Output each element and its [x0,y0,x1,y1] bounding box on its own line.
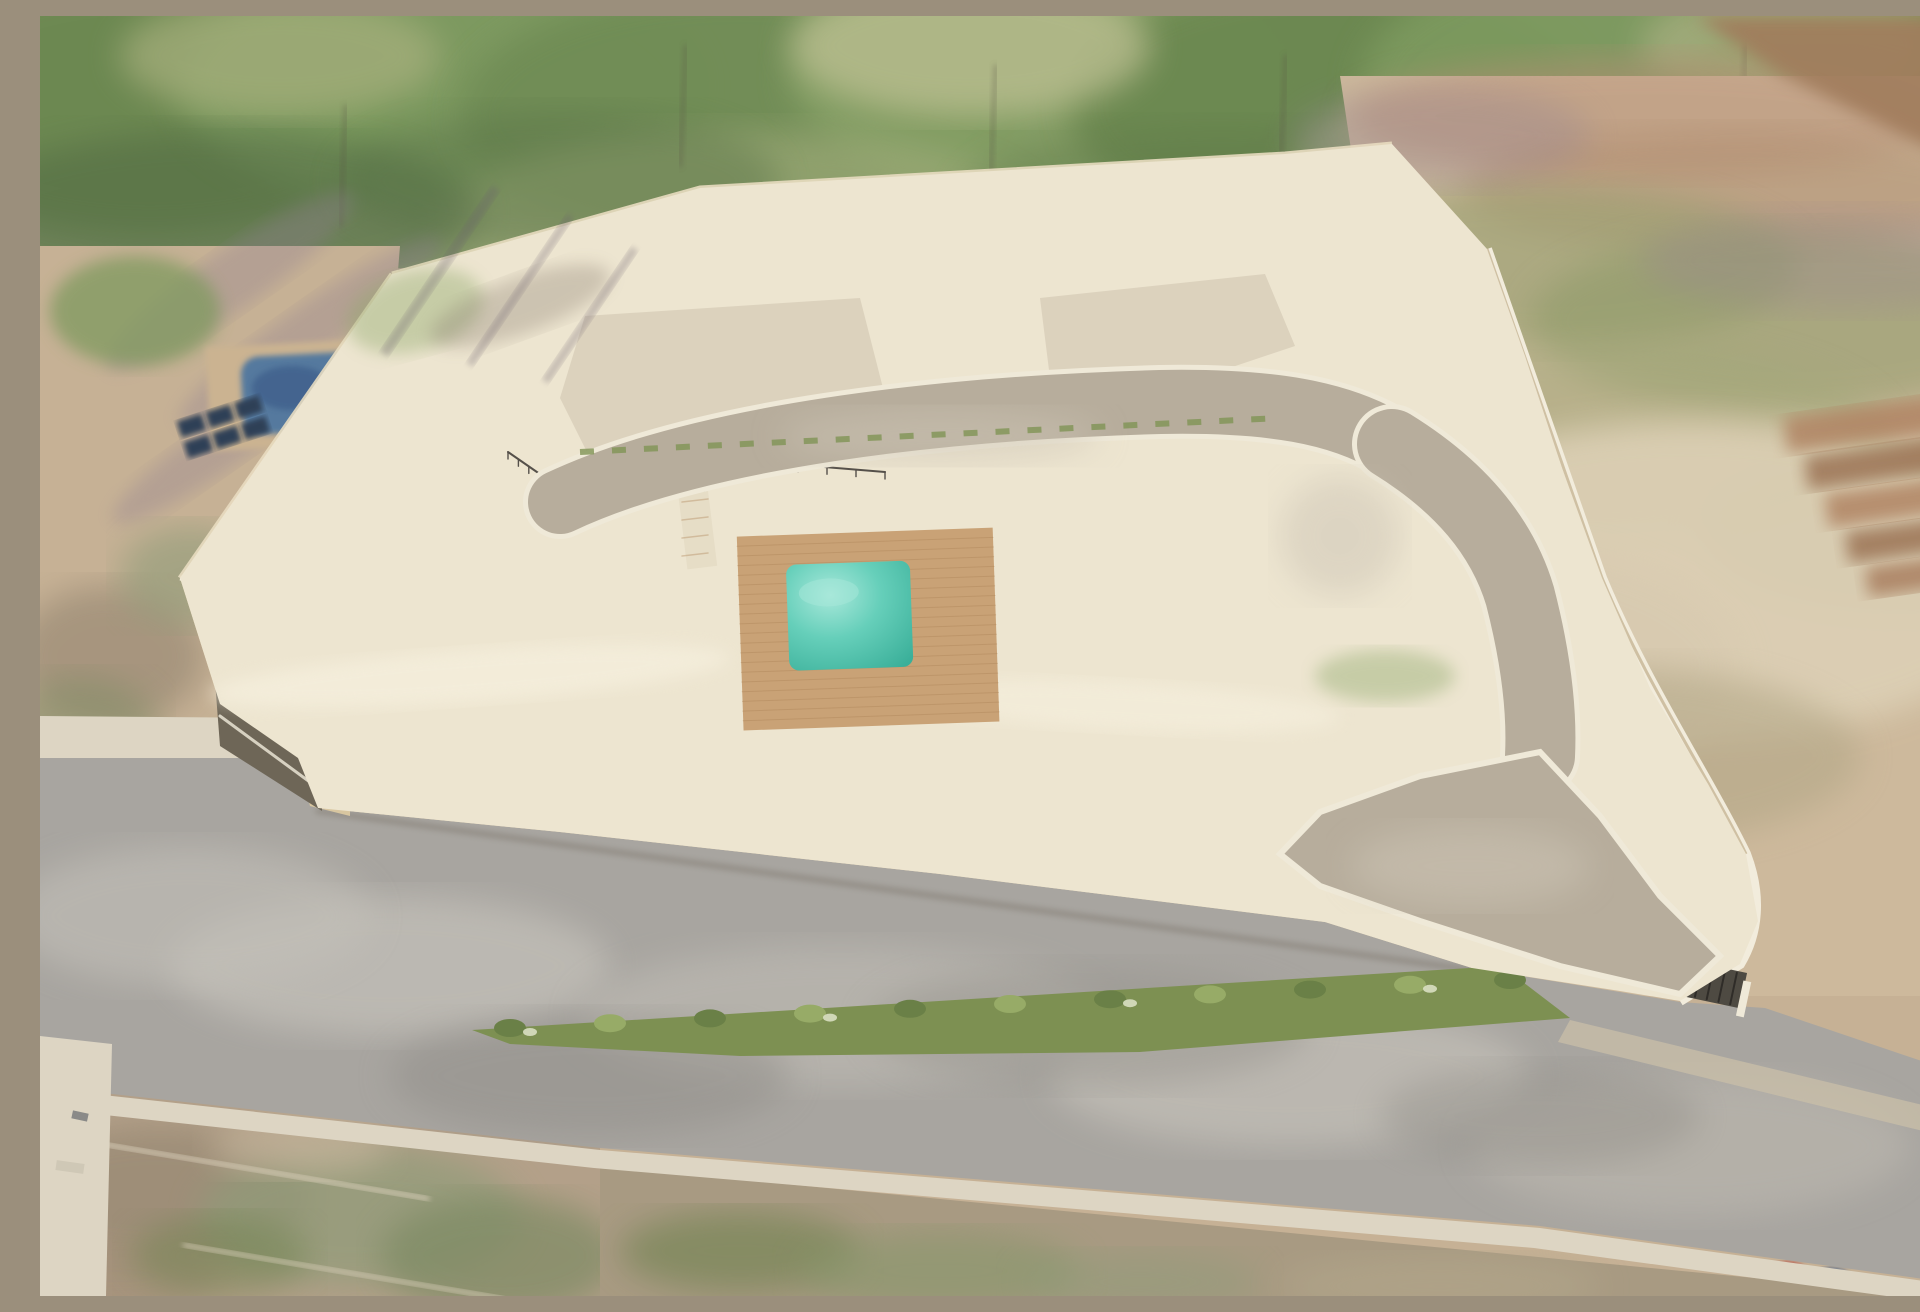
communal-pool [786,561,914,671]
hedge-bush [1294,981,1326,999]
hedge-bush [1194,985,1226,1003]
pool-deck [737,528,1000,731]
rendering-canvas [40,16,1920,1296]
neighbour-lawn [50,256,220,366]
flowering-bush [1423,985,1437,993]
pool-and-pergolas-layer [737,528,1000,731]
worn-drive-patch [1350,826,1590,906]
hedge-bush [894,1000,926,1018]
flowering-bush [823,1014,837,1022]
hedge-bush [694,1009,726,1027]
plot-patch [130,1216,310,1296]
hedge-bush [994,995,1026,1013]
flowering-bush [523,1028,537,1036]
architectural-rendering [40,16,1920,1296]
hedge-bush [494,1019,526,1037]
asphalt-mottling [1380,1066,1700,1166]
hedge-bush [594,1014,626,1032]
flowering-bush [1123,999,1137,1007]
hedge-bush [1394,976,1426,994]
hedge-bush [1094,990,1126,1008]
villa-lawn [1315,650,1455,702]
worn-drive-patch [1280,476,1400,596]
hedge-bush [794,1005,826,1023]
